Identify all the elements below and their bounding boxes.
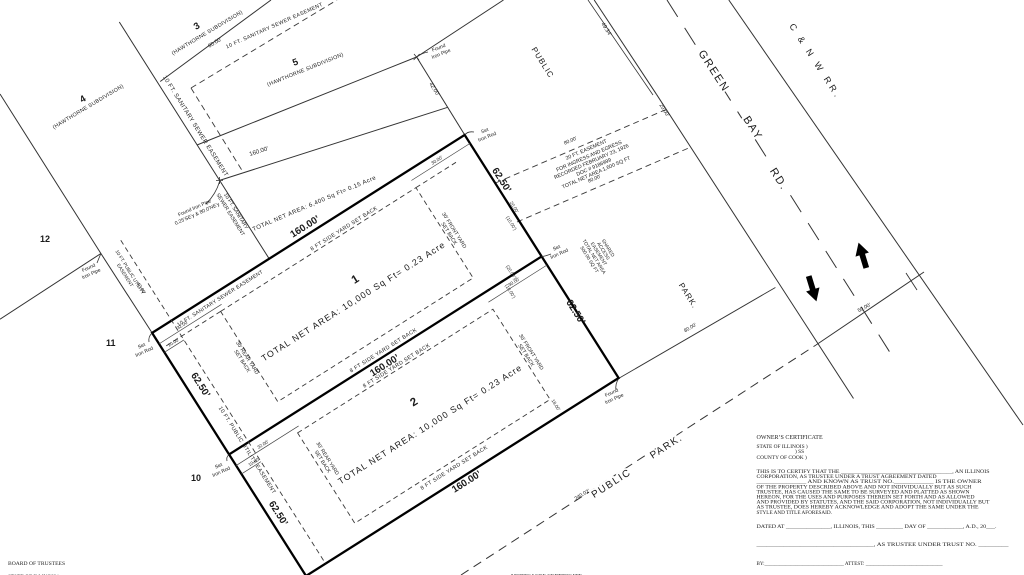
svg-text:10: 10 — [191, 473, 201, 483]
svg-text:STYLE AND TITLE AFORESAID.: STYLE AND TITLE AFORESAID. — [757, 510, 832, 516]
svg-text:OWNER’S CERTIFICATE: OWNER’S CERTIFICATE — [757, 435, 823, 441]
svg-text:COUNTY OF COOK ): COUNTY OF COOK ) — [757, 454, 807, 461]
svg-text:12: 12 — [40, 234, 50, 244]
svg-text:11: 11 — [106, 338, 116, 348]
svg-text:DATED AT _______________, ILLI: DATED AT _______________, ILLINOIS, THIS… — [757, 524, 997, 530]
svg-text:BY:___________________________: BY:_______________________________ ATTES… — [757, 561, 943, 567]
svg-text:) SS: ) SS — [795, 448, 804, 455]
svg-text:______________________________: ___________________________________, AS … — [755, 542, 1009, 548]
svg-text:BOARD OF TRUSTEES: BOARD OF TRUSTEES — [8, 561, 65, 567]
